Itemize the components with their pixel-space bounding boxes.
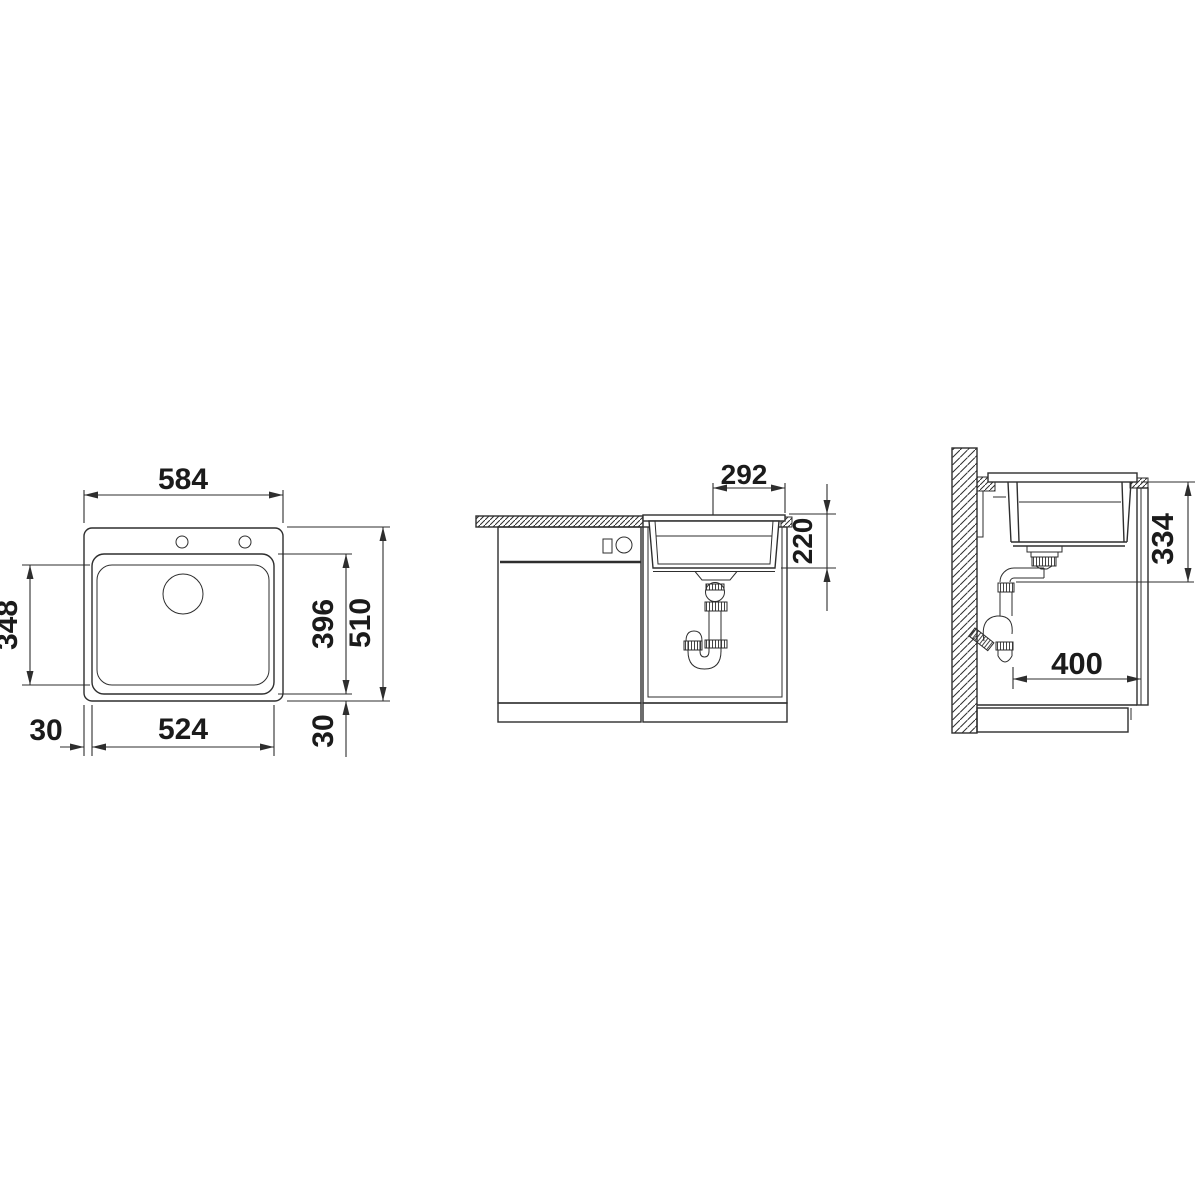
side-view-drain-height-label: 334 (1145, 512, 1180, 564)
dim-rim-bottom (343, 701, 350, 757)
bowl-inner-edge (97, 565, 269, 685)
plinth-left (498, 703, 641, 722)
drain-hole (163, 574, 203, 614)
faucet-hole-left (176, 536, 188, 548)
bowl-outer-edge (92, 554, 274, 694)
cabinet-left (498, 527, 641, 703)
plinth-right (643, 703, 787, 722)
front-view (476, 483, 836, 722)
coupling-nut (998, 583, 1014, 592)
wall-section (952, 448, 977, 733)
top-view-bowl-width-label: 524 (158, 713, 208, 746)
countertop-left (476, 516, 643, 527)
trap-u-inner (700, 651, 709, 657)
siphon-front (684, 572, 737, 670)
sink-flange-side (988, 473, 1137, 482)
top-view-bowl-height-label: 396 (307, 599, 340, 649)
strainer-flange-side (1027, 546, 1062, 552)
control-rect-icon (603, 539, 612, 553)
top-view-rim-left-label: 30 (29, 714, 62, 747)
sink-dimension-diagram: 584 348 396 510 524 30 30 292 220 334 40… (0, 0, 1200, 1200)
basin-walls-side (1008, 482, 1131, 542)
top-view-outer-height-label: 510 (344, 598, 377, 648)
trap-bottom-cap (998, 650, 1012, 662)
basin-bottom-side (1011, 542, 1127, 546)
sink-flange-front (643, 515, 785, 521)
coupling-nut (705, 602, 727, 611)
coupling-nut (996, 642, 1013, 650)
front-view-bowl-depth-label: 220 (787, 518, 818, 565)
plinth-side (977, 708, 1128, 732)
wall-rail (977, 491, 983, 537)
trap-cap (686, 631, 702, 641)
strainer-flange (695, 572, 737, 581)
elbow (1000, 568, 1014, 582)
control-knob-icon (616, 537, 632, 553)
top-view-rim-bottom-label: 30 (307, 714, 340, 747)
faucet-hole-right (239, 536, 251, 548)
top-view-outer-width-label: 584 (158, 463, 208, 496)
siphon-side (969, 546, 1062, 662)
basin-outer (649, 521, 779, 568)
strainer-nut (1032, 557, 1056, 566)
side-view (952, 448, 1195, 733)
top-view-inner-height-label: 348 (0, 600, 24, 650)
diagram-canvas: 584 348 396 510 524 30 30 292 220 334 40… (0, 0, 1200, 1200)
trap-u-outer (688, 651, 721, 669)
front-view-drain-offset-label: 292 (721, 459, 768, 490)
coupling-nut (705, 640, 727, 648)
tailpipe-horizontal (1014, 568, 1044, 578)
coupling-nut (684, 641, 702, 650)
side-view-wall-clearance-label: 400 (1051, 646, 1103, 681)
dim-inner-height (22, 565, 90, 685)
dim-rim-left (60, 744, 84, 751)
